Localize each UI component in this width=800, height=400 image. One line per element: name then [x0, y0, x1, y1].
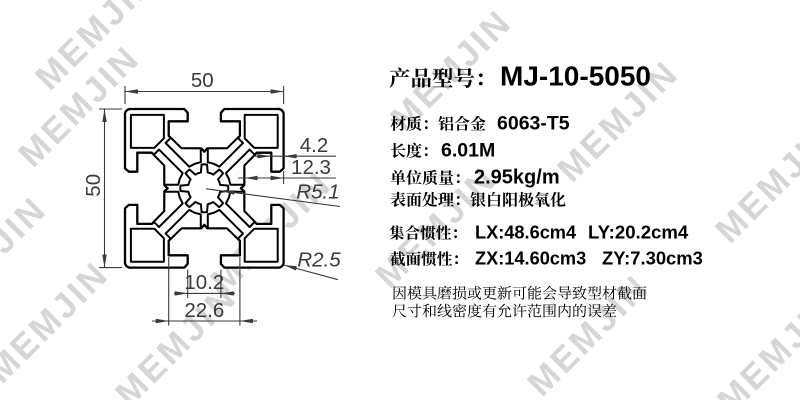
svg-text:10.2: 10.2: [184, 271, 224, 294]
svg-text:MJ-10-5050: MJ-10-5050: [500, 61, 651, 92]
svg-text:LX:48.6cm4: LX:48.6cm4: [475, 223, 577, 243]
svg-text:12.3: 12.3: [291, 156, 331, 179]
svg-text:6.01M: 6.01M: [441, 140, 495, 162]
svg-text:ZY:7.30cm3: ZY:7.30cm3: [602, 248, 703, 269]
svg-text:ZX:14.60cm3: ZX:14.60cm3: [475, 249, 586, 269]
svg-text:R5.1: R5.1: [296, 181, 339, 204]
svg-text:6063-T5: 6063-T5: [497, 113, 570, 135]
svg-text:22.6: 22.6: [184, 299, 224, 322]
svg-text:2.95kg/m: 2.95kg/m: [474, 167, 560, 189]
svg-text:50: 50: [191, 69, 214, 92]
svg-text:LY:20.2cm4: LY:20.2cm4: [588, 222, 689, 243]
svg-text:4.2: 4.2: [300, 134, 329, 157]
svg-text:50: 50: [82, 174, 105, 197]
svg-text:R2.5: R2.5: [297, 249, 341, 272]
